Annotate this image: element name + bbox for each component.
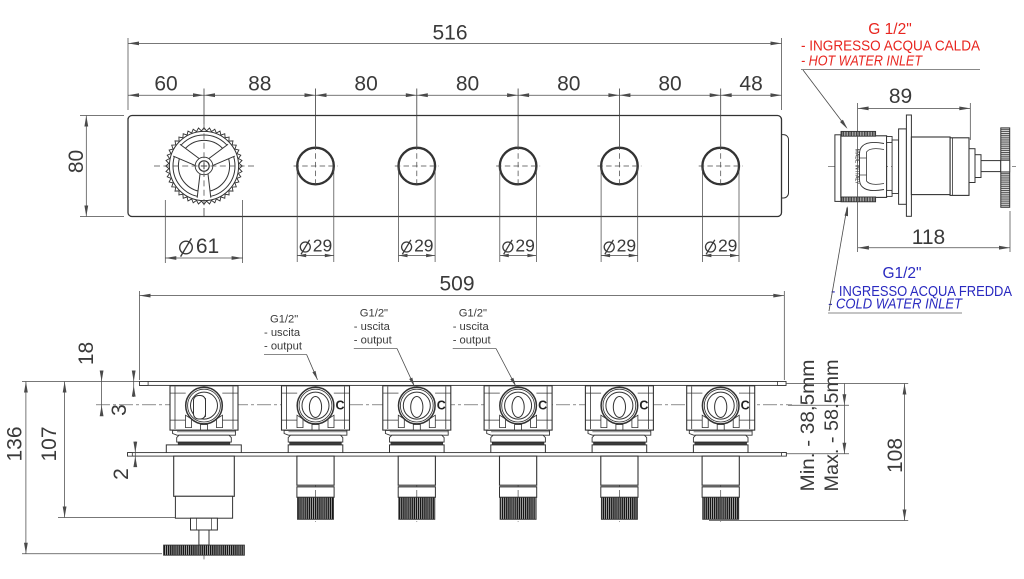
- svg-text:- output: - output: [354, 335, 393, 347]
- svg-text:509: 509: [439, 273, 474, 296]
- svg-text:107: 107: [38, 426, 61, 461]
- svg-text:G1/2": G1/2": [360, 308, 388, 320]
- svg-text:G1/2": G1/2": [882, 265, 921, 282]
- svg-text:- HOT WATER INLET: - HOT WATER INLET: [801, 53, 923, 70]
- svg-text:136: 136: [4, 426, 27, 461]
- svg-text:89: 89: [889, 85, 912, 108]
- svg-text:- output: - output: [453, 335, 492, 347]
- svg-text:80: 80: [557, 73, 580, 96]
- svg-text:3: 3: [108, 404, 131, 416]
- svg-text:- COLD WATER INLET: - COLD WATER INLET: [828, 296, 963, 313]
- svg-text:29: 29: [718, 236, 737, 256]
- svg-text:29: 29: [313, 236, 332, 256]
- svg-text:2: 2: [110, 468, 133, 480]
- svg-text:C: C: [741, 399, 750, 413]
- svg-text:88: 88: [248, 73, 271, 96]
- svg-text:80: 80: [456, 73, 479, 96]
- svg-text:MADE IN ITALY: MADE IN ITALY: [854, 149, 860, 185]
- svg-text:118: 118: [912, 226, 945, 249]
- svg-text:C: C: [639, 399, 648, 413]
- svg-text:G 1/2": G 1/2": [868, 21, 911, 38]
- svg-text:29: 29: [617, 236, 636, 256]
- svg-text:C: C: [437, 399, 446, 413]
- svg-text:29: 29: [414, 236, 433, 256]
- svg-text:G1/2": G1/2": [270, 314, 298, 326]
- svg-text:29: 29: [515, 236, 534, 256]
- svg-text:18: 18: [75, 342, 98, 365]
- svg-text:G1/2": G1/2": [459, 308, 487, 320]
- svg-text:- uscita: - uscita: [354, 321, 391, 333]
- svg-text:- uscita: - uscita: [264, 327, 301, 339]
- svg-text:80: 80: [354, 73, 377, 96]
- svg-text:C: C: [335, 399, 344, 413]
- svg-text:80: 80: [65, 150, 88, 173]
- svg-text:48: 48: [739, 73, 762, 96]
- svg-text:Min. - 38,5mm: Min. - 38,5mm: [798, 360, 819, 492]
- svg-text:C: C: [538, 399, 547, 413]
- svg-text:80: 80: [658, 73, 681, 96]
- svg-text:60: 60: [154, 73, 177, 96]
- svg-text:516: 516: [432, 22, 467, 45]
- svg-text:- uscita: - uscita: [453, 321, 490, 333]
- svg-text:Max. - 58.5mm: Max. - 58.5mm: [822, 360, 843, 492]
- svg-text:61: 61: [196, 235, 219, 258]
- svg-text:108: 108: [884, 438, 907, 473]
- svg-text:- output: - output: [264, 341, 303, 353]
